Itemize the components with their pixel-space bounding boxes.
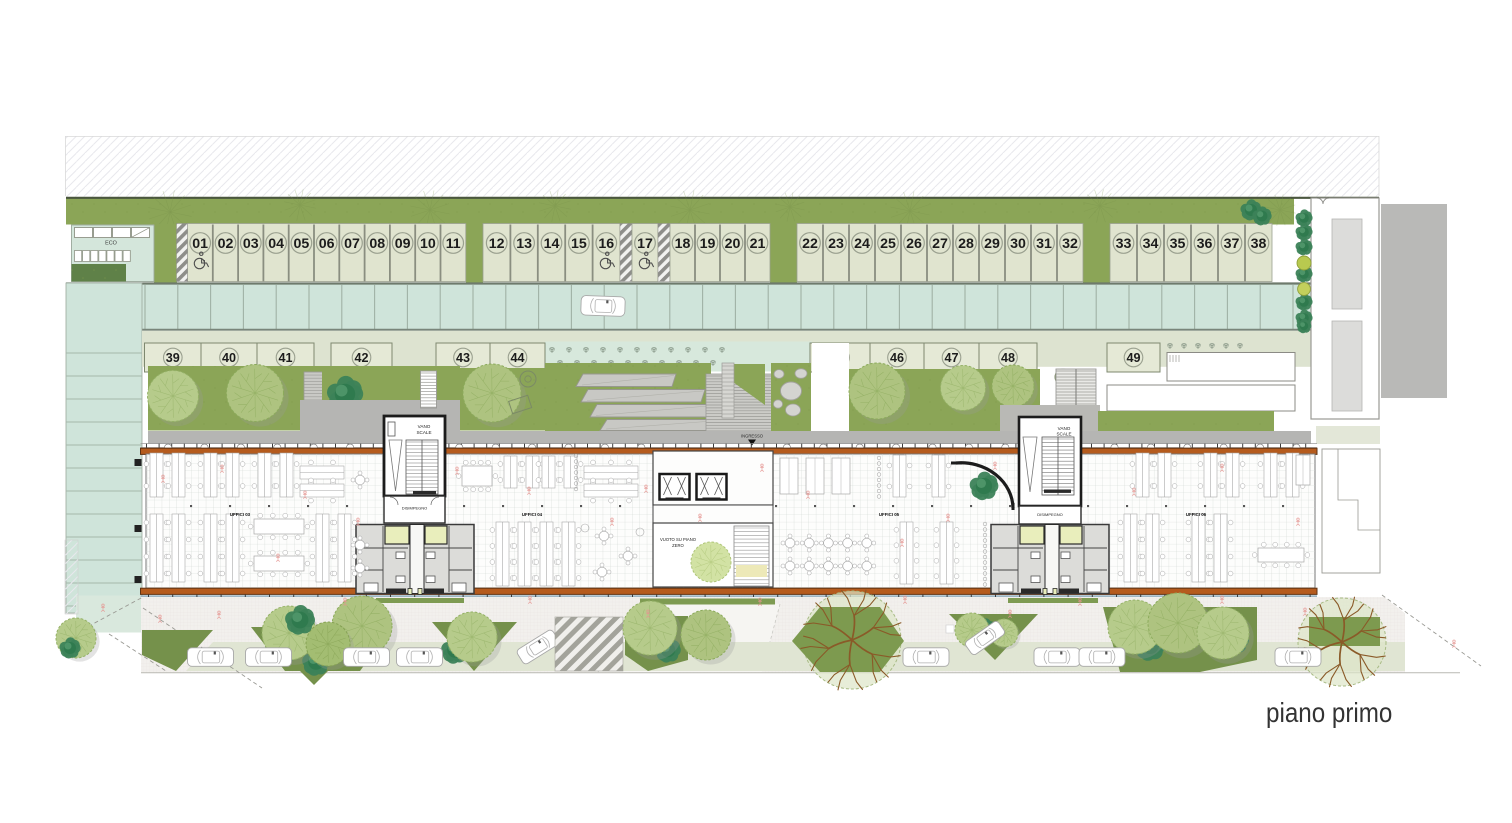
svg-text:13: 13 [516,236,532,252]
svg-text:ECO: ECO [105,241,117,247]
svg-text:31: 31 [1036,236,1052,252]
svg-text:01: 01 [192,236,208,252]
svg-text:UFFICI 04: UFFICI 04 [522,512,543,517]
svg-text:UFFICI 03: UFFICI 03 [230,512,251,517]
svg-text:03: 03 [243,236,259,252]
svg-text:32: 32 [1062,236,1078,252]
svg-text:30: 30 [1010,236,1026,252]
svg-text:14: 14 [544,236,560,252]
svg-text:SCALE: SCALE [1056,432,1071,437]
svg-text:36: 36 [1197,236,1213,252]
svg-text:UFFICI 05: UFFICI 05 [879,512,900,517]
svg-text:VANO: VANO [1058,426,1071,431]
svg-text:08: 08 [369,236,385,252]
svg-text:38: 38 [1251,236,1267,252]
svg-text:29: 29 [984,236,1000,252]
svg-text:41: 41 [278,351,292,365]
svg-text:49: 49 [1126,351,1140,365]
svg-text:34: 34 [1143,236,1159,252]
svg-text:43: 43 [456,351,470,365]
svg-text:18: 18 [675,236,691,252]
svg-text:17: 17 [637,236,653,252]
svg-text:46: 46 [890,351,904,365]
svg-text:21: 21 [750,236,766,252]
svg-text:19: 19 [700,236,716,252]
svg-text:15: 15 [571,236,587,252]
svg-text:piano primo: piano primo [1266,699,1392,729]
svg-text:09: 09 [395,236,411,252]
svg-text:04: 04 [268,236,284,252]
svg-text:24: 24 [854,236,870,252]
svg-text:35: 35 [1170,236,1186,252]
svg-text:SCALE: SCALE [416,430,431,435]
svg-text:UFFICI 06: UFFICI 06 [1186,512,1207,517]
svg-text:12: 12 [489,236,505,252]
svg-text:DISIMPEGNO: DISIMPEGNO [402,506,428,511]
svg-text:02: 02 [218,236,234,252]
svg-text:07: 07 [344,236,360,252]
svg-text:33: 33 [1116,236,1132,252]
svg-text:11: 11 [446,236,461,252]
svg-text:44: 44 [510,351,524,365]
svg-text:28: 28 [958,236,974,252]
svg-text:48: 48 [1001,351,1015,365]
svg-text:40: 40 [222,351,236,365]
svg-text:26: 26 [906,236,922,252]
svg-text:10: 10 [420,236,436,252]
svg-text:20: 20 [725,236,741,252]
svg-text:23: 23 [828,236,844,252]
svg-text:05: 05 [294,236,310,252]
svg-text:06: 06 [319,236,335,252]
svg-text:37: 37 [1224,236,1240,252]
svg-text:DISIMPEGNO: DISIMPEGNO [1037,512,1063,517]
svg-text:22: 22 [802,236,818,252]
svg-text:47: 47 [944,351,958,365]
svg-text:VANO: VANO [418,424,431,429]
svg-text:42: 42 [354,351,368,365]
svg-text:27: 27 [932,236,948,252]
svg-text:INGRESSO: INGRESSO [741,434,764,439]
svg-text:VUOTO SU PIANO: VUOTO SU PIANO [660,537,697,542]
svg-text:39: 39 [166,351,180,365]
svg-text:25: 25 [880,236,896,252]
svg-text:ZERO: ZERO [672,543,684,548]
svg-text:16: 16 [598,236,614,252]
